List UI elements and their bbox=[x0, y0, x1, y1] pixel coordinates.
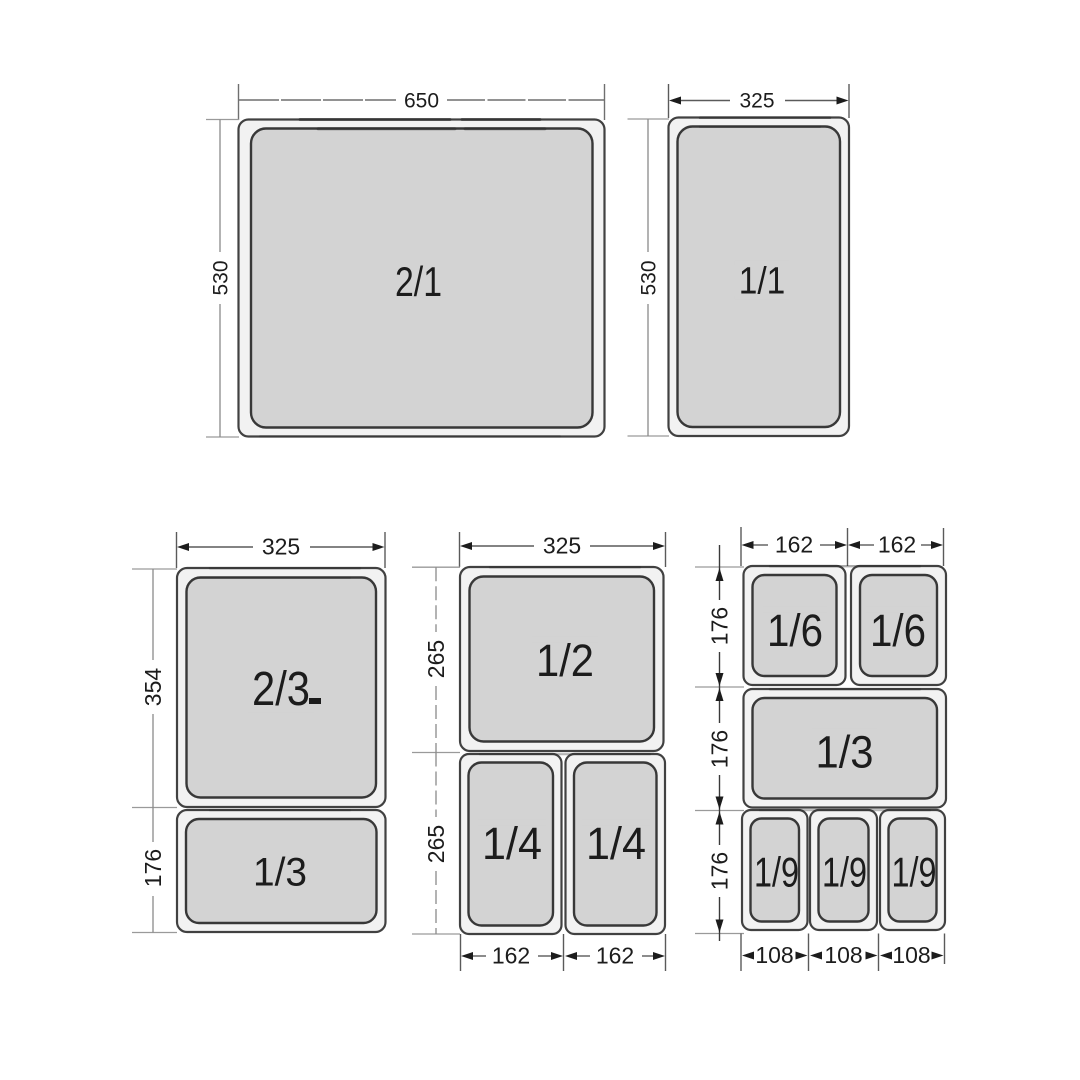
svg-text:176: 176 bbox=[140, 849, 166, 887]
svg-text:176: 176 bbox=[707, 607, 733, 645]
svg-text:325: 325 bbox=[543, 533, 581, 559]
svg-text:108: 108 bbox=[824, 942, 862, 968]
svg-text:162: 162 bbox=[878, 532, 916, 558]
svg-text:650: 650 bbox=[404, 90, 439, 113]
svg-text:530: 530 bbox=[638, 260, 661, 295]
svg-text:176: 176 bbox=[707, 730, 733, 768]
svg-text:1/9: 1/9 bbox=[754, 849, 799, 896]
svg-text:2/1: 2/1 bbox=[395, 258, 442, 305]
svg-text:1/9: 1/9 bbox=[822, 849, 867, 896]
svg-text:176: 176 bbox=[707, 852, 733, 890]
svg-text:108: 108 bbox=[755, 942, 793, 968]
svg-text:108: 108 bbox=[892, 942, 930, 968]
svg-text:1/9: 1/9 bbox=[892, 849, 937, 896]
svg-text:530: 530 bbox=[210, 260, 233, 295]
svg-text:325: 325 bbox=[739, 90, 774, 113]
svg-text:354: 354 bbox=[140, 668, 166, 707]
svg-text:265: 265 bbox=[423, 640, 449, 678]
svg-text:325: 325 bbox=[262, 534, 300, 560]
svg-text:162: 162 bbox=[596, 943, 634, 969]
svg-text:162: 162 bbox=[492, 943, 530, 969]
svg-text:265: 265 bbox=[423, 825, 449, 863]
svg-text:162: 162 bbox=[775, 532, 813, 558]
